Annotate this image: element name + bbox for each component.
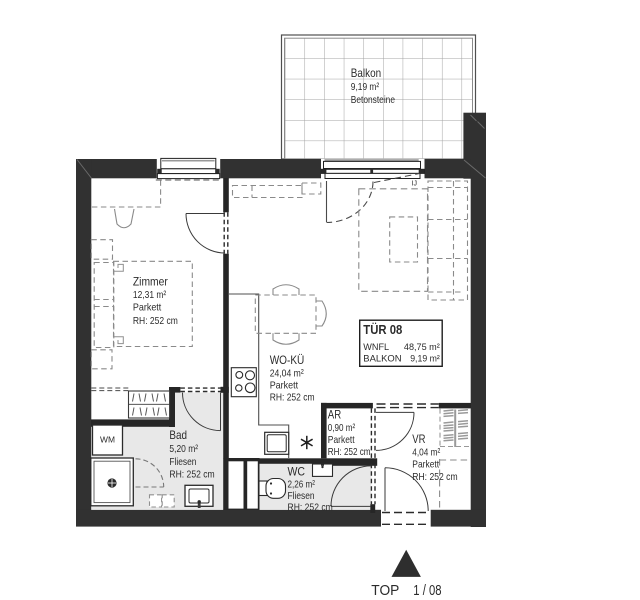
svg-text:1 / 08: 1 / 08 xyxy=(413,583,441,599)
svg-text:Fliesen: Fliesen xyxy=(169,457,196,468)
svg-text:Bad: Bad xyxy=(169,428,187,442)
svg-text:WNFL: WNFL xyxy=(363,342,389,352)
svg-text:BALKON: BALKON xyxy=(363,354,401,364)
svg-text:0,90 m²: 0,90 m² xyxy=(328,423,356,434)
svg-text:5,20 m²: 5,20 m² xyxy=(169,444,198,455)
svg-text:4,04 m²: 4,04 m² xyxy=(412,447,440,458)
svg-text:Fliesen: Fliesen xyxy=(288,491,315,502)
svg-text:RH: 252 cm: RH: 252 cm xyxy=(133,316,178,327)
svg-text:Parkett: Parkett xyxy=(270,380,299,391)
svg-text:12,31 m²: 12,31 m² xyxy=(133,290,167,301)
svg-text:2,26 m²: 2,26 m² xyxy=(288,479,316,490)
svg-text:TOP: TOP xyxy=(371,583,399,599)
svg-text:TÜR 08: TÜR 08 xyxy=(363,322,402,337)
svg-text:RH: 252 cm: RH: 252 cm xyxy=(288,502,333,513)
svg-text:Parkett: Parkett xyxy=(412,460,439,471)
svg-text:IJ: IJ xyxy=(412,181,417,188)
svg-text:48,75 m²: 48,75 m² xyxy=(404,342,440,352)
svg-text:Betonsteine: Betonsteine xyxy=(351,95,395,106)
svg-text:RH: 252 cm: RH: 252 cm xyxy=(412,472,457,483)
svg-text:AR: AR xyxy=(328,407,342,421)
svg-text:Parkett: Parkett xyxy=(328,435,355,446)
svg-text:Zimmer: Zimmer xyxy=(133,275,168,289)
svg-text:9,19 m²: 9,19 m² xyxy=(351,82,380,93)
svg-text:Balkon: Balkon xyxy=(351,66,381,80)
svg-text:RH: 252 cm: RH: 252 cm xyxy=(328,447,371,458)
svg-text:VR: VR xyxy=(412,432,425,446)
svg-text:9,19 m²: 9,19 m² xyxy=(410,354,440,364)
svg-text:RH: 252 cm: RH: 252 cm xyxy=(169,470,214,481)
svg-text:WO-KÜ: WO-KÜ xyxy=(270,353,305,367)
svg-text:RH: 252 cm: RH: 252 cm xyxy=(270,393,315,404)
svg-text:WC: WC xyxy=(288,465,306,479)
svg-text:Parkett: Parkett xyxy=(133,303,162,314)
svg-text:24,04 m²: 24,04 m² xyxy=(270,368,304,379)
svg-text:WM: WM xyxy=(100,436,115,445)
